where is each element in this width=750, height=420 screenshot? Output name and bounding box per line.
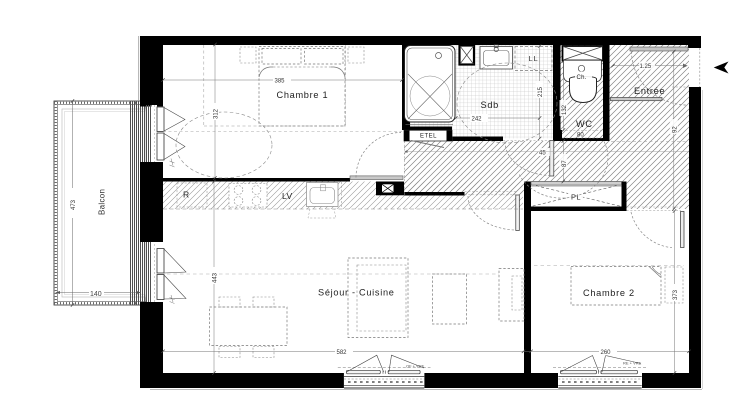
svg-text:582: 582 xyxy=(337,350,348,356)
svg-text:OF + VRE: OF + VRE xyxy=(406,364,425,369)
svg-text:Chambre 2: Chambre 2 xyxy=(583,288,635,298)
svg-text:LV: LV xyxy=(282,191,293,201)
svg-text:Ch.: Ch. xyxy=(577,75,587,81)
svg-text:385: 385 xyxy=(275,79,286,85)
svg-text:Sdb: Sdb xyxy=(481,100,499,110)
svg-text:Chambre 1: Chambre 1 xyxy=(277,90,329,100)
svg-text:242: 242 xyxy=(472,117,483,123)
svg-text:80: 80 xyxy=(577,133,584,139)
svg-text:473: 473 xyxy=(71,199,77,210)
svg-text:RE + VRE: RE + VRE xyxy=(623,361,642,366)
svg-text:373: 373 xyxy=(673,289,679,300)
svg-text:WC: WC xyxy=(576,119,593,129)
svg-text:Balcon: Balcon xyxy=(97,189,106,215)
svg-text:R: R xyxy=(183,190,190,200)
svg-text:LL: LL xyxy=(529,54,539,63)
svg-text:140: 140 xyxy=(90,291,102,298)
svg-text:312: 312 xyxy=(214,108,220,119)
svg-text:ETEL: ETEL xyxy=(420,134,437,140)
svg-text:443: 443 xyxy=(213,272,219,283)
svg-text:Entrée: Entrée xyxy=(634,86,665,96)
svg-text:132: 132 xyxy=(562,104,568,115)
svg-text:215: 215 xyxy=(538,86,544,97)
svg-text:87: 87 xyxy=(562,160,568,167)
svg-text:92: 92 xyxy=(672,126,678,133)
svg-text:Séjour - Cuisine: Séjour - Cuisine xyxy=(318,288,395,298)
svg-text:260: 260 xyxy=(601,350,612,356)
svg-text:1.25: 1.25 xyxy=(640,64,652,70)
